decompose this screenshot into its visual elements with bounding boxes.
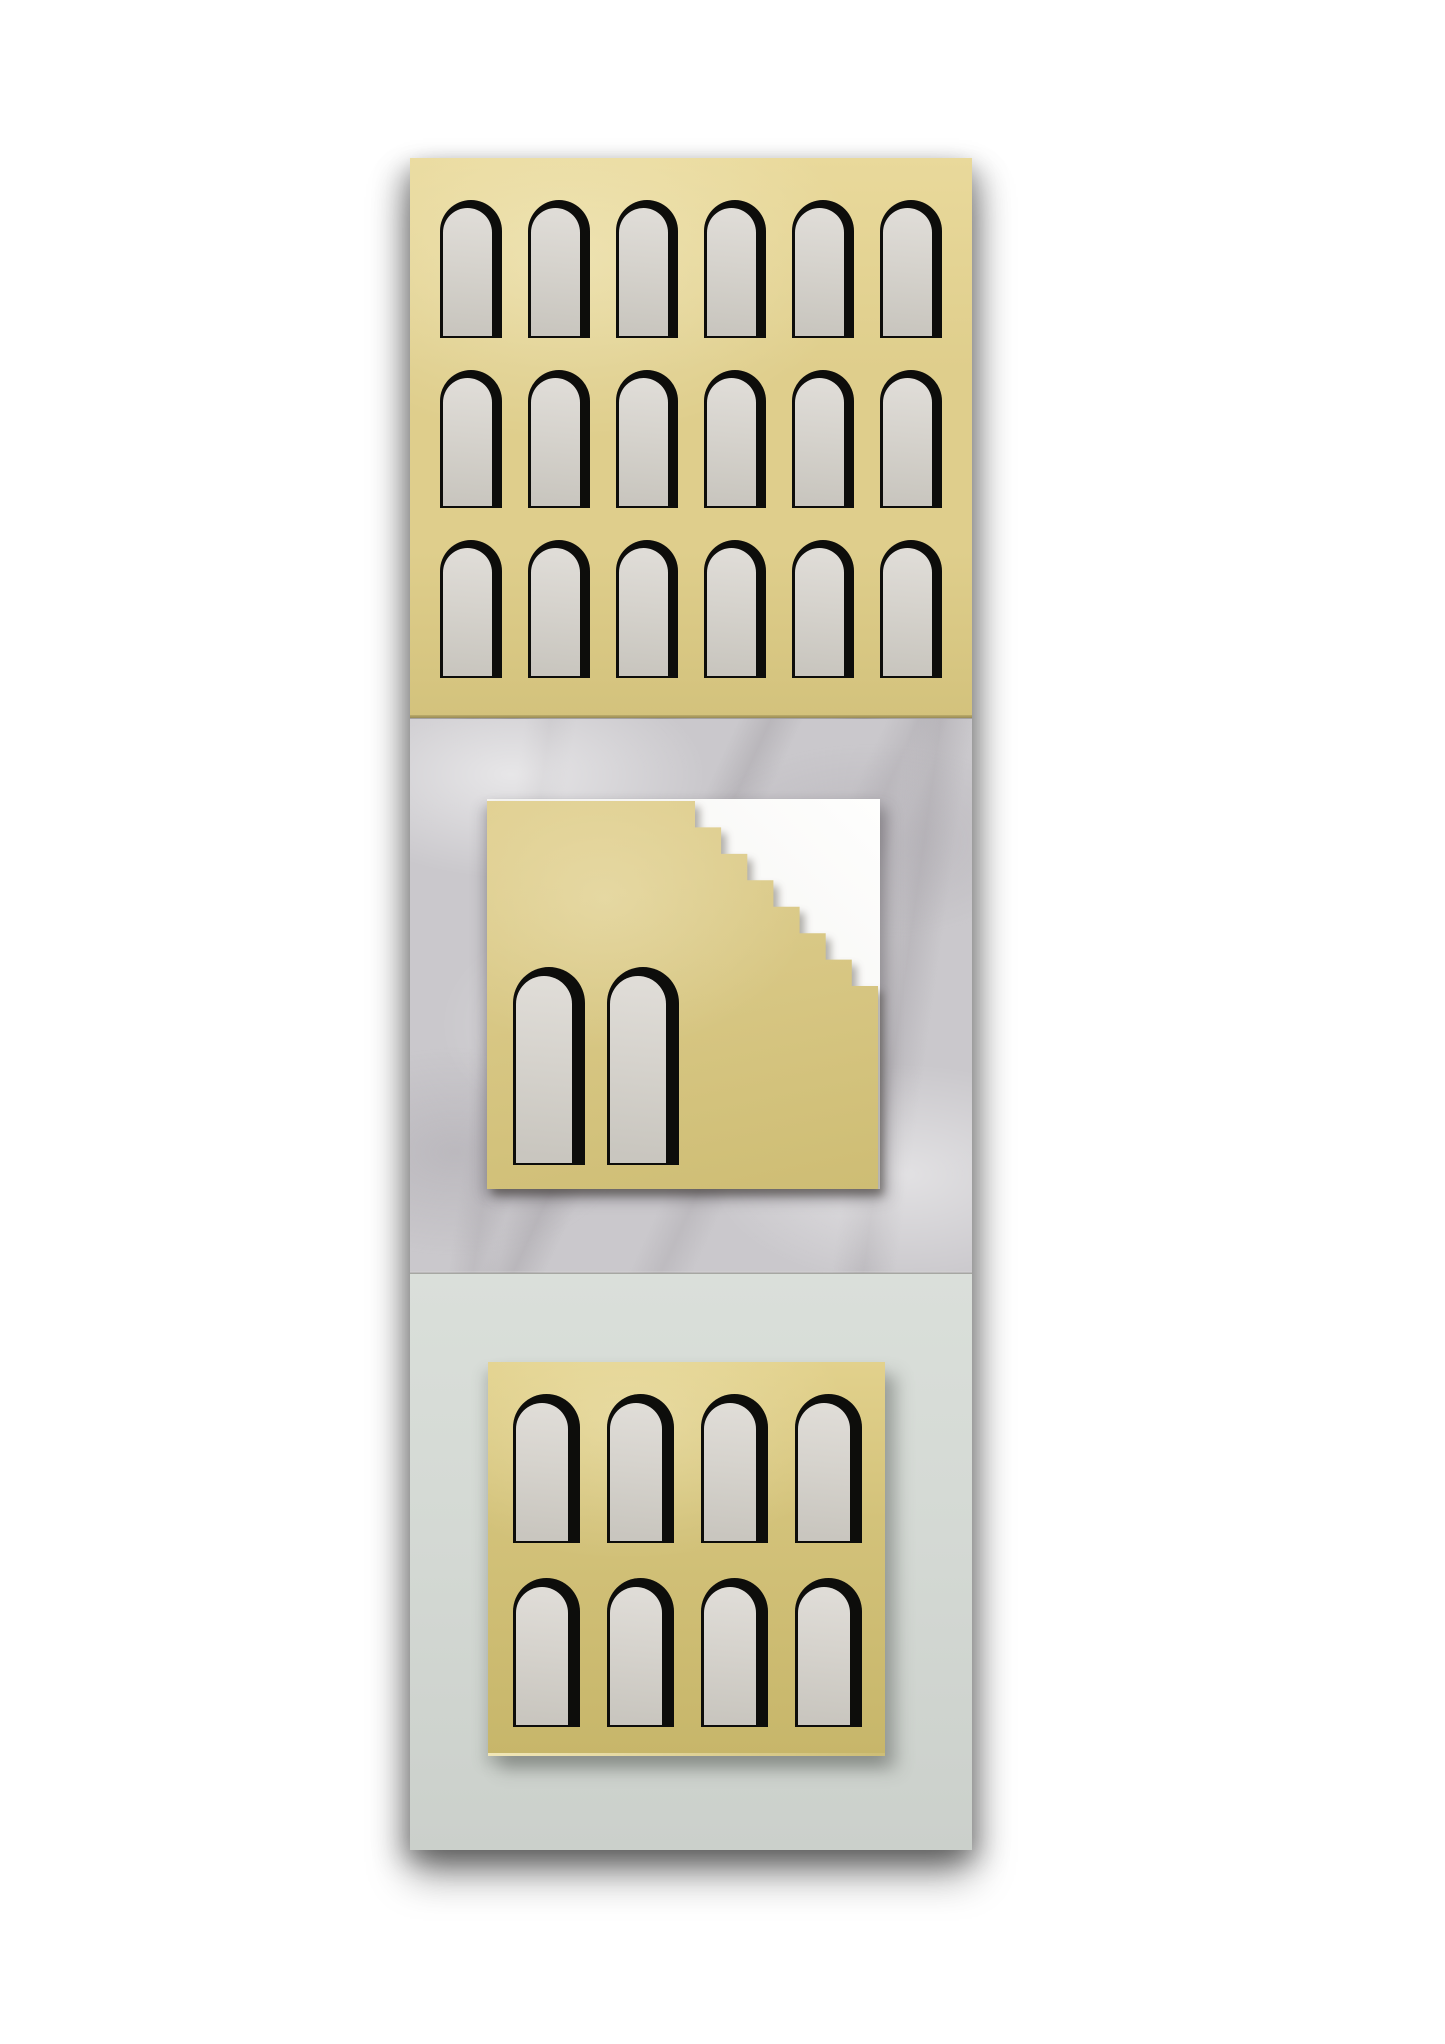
arch-recess bbox=[619, 208, 668, 336]
arch-recess bbox=[707, 378, 756, 506]
arch-recess bbox=[531, 378, 580, 506]
middle-marble-slab bbox=[410, 718, 972, 1274]
arch-recess bbox=[707, 548, 756, 676]
arch-cutout bbox=[440, 200, 502, 338]
arch-recess bbox=[798, 1587, 850, 1725]
arch-recess bbox=[798, 1403, 850, 1541]
arch-cutout bbox=[701, 1578, 768, 1727]
arch-cutout bbox=[792, 540, 854, 678]
arch-recess bbox=[883, 378, 932, 506]
top-brass-arcade-plate bbox=[410, 158, 972, 718]
arch-recess bbox=[704, 1403, 756, 1541]
arch-recess bbox=[795, 378, 844, 506]
photo-background: { "alt": "Architectural wall relief artw… bbox=[0, 0, 1445, 2044]
arch-recess bbox=[516, 1587, 568, 1725]
arch-recess bbox=[619, 378, 668, 506]
arch-cutout bbox=[792, 200, 854, 338]
arch-recess bbox=[610, 1403, 662, 1541]
bottom-brass-arcade-plaque bbox=[488, 1362, 885, 1756]
arch-cutout bbox=[704, 200, 766, 338]
arch-cutout bbox=[795, 1394, 862, 1543]
arch-cutout bbox=[607, 1578, 674, 1727]
arch-cutout bbox=[607, 967, 679, 1165]
artwork-panel bbox=[410, 158, 972, 1849]
arch-recess bbox=[795, 208, 844, 336]
arch-cutout bbox=[880, 370, 942, 508]
bottom-sage-panel bbox=[410, 1273, 972, 1850]
arch-recess bbox=[531, 548, 580, 676]
arch-recess bbox=[610, 1587, 662, 1725]
arch-recess bbox=[443, 548, 492, 676]
arch-cutout bbox=[616, 370, 678, 508]
arch-recess bbox=[795, 548, 844, 676]
arch-cutout bbox=[880, 200, 942, 338]
arch-recess bbox=[704, 1587, 756, 1725]
middle-brass-plaque-with-staircase-notch bbox=[487, 801, 878, 1189]
arch-cutout bbox=[616, 540, 678, 678]
arch-recess bbox=[443, 208, 492, 336]
arch-recess bbox=[883, 208, 932, 336]
arch-cutout bbox=[513, 1578, 580, 1727]
arch-cutout bbox=[701, 1394, 768, 1543]
arch-cutout bbox=[704, 370, 766, 508]
arch-recess bbox=[610, 976, 666, 1163]
arch-recess bbox=[707, 208, 756, 336]
arch-cutout bbox=[440, 540, 502, 678]
arch-recess bbox=[531, 208, 580, 336]
arch-cutout bbox=[880, 540, 942, 678]
arch-cutout bbox=[528, 370, 590, 508]
arch-cutout bbox=[440, 370, 502, 508]
arch-cutout bbox=[616, 200, 678, 338]
arch-recess bbox=[883, 548, 932, 676]
arch-recess bbox=[516, 1403, 568, 1541]
arch-cutout bbox=[704, 540, 766, 678]
arch-recess bbox=[443, 378, 492, 506]
arch-cutout bbox=[513, 1394, 580, 1543]
arch-recess bbox=[619, 548, 668, 676]
arch-cutout bbox=[795, 1578, 862, 1727]
arch-cutout bbox=[607, 1394, 674, 1543]
arch-cutout bbox=[513, 967, 585, 1165]
middle-brass-plaque-shadow-wrap bbox=[487, 801, 878, 1189]
arch-cutout bbox=[792, 370, 854, 508]
arch-recess bbox=[516, 976, 572, 1163]
arch-cutout bbox=[528, 540, 590, 678]
arch-cutout bbox=[528, 200, 590, 338]
